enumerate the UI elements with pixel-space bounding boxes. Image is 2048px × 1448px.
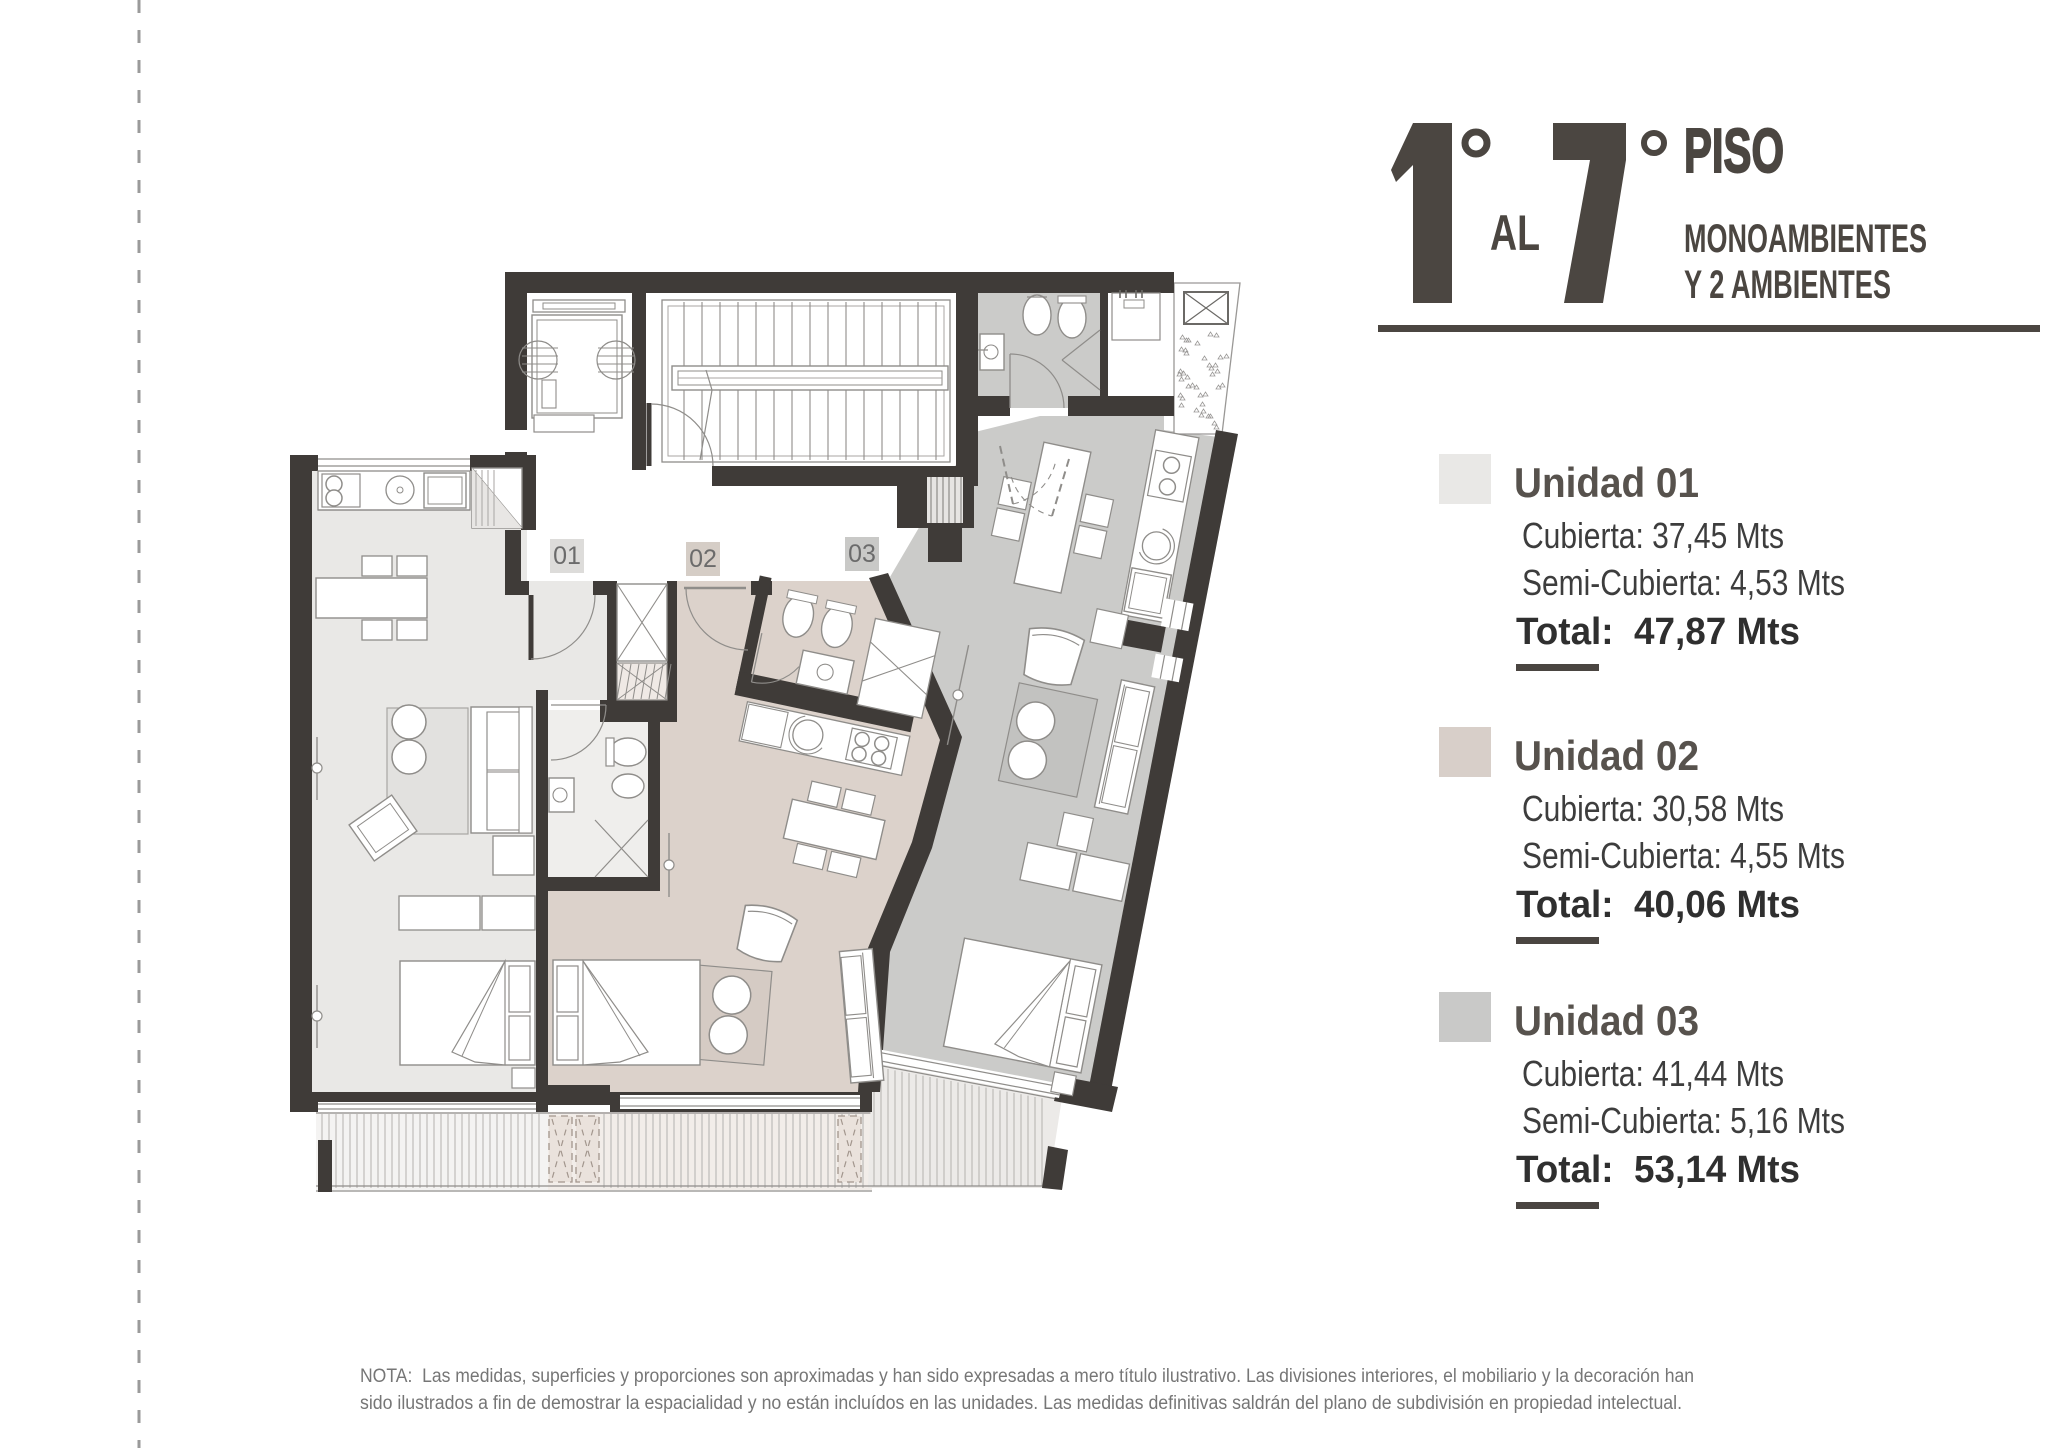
svg-text:Semi-Cubierta: 4,55 Mts: Semi-Cubierta: 4,55 Mts bbox=[1522, 835, 1845, 876]
svg-text:Unidad 03: Unidad 03 bbox=[1514, 997, 1699, 1044]
svg-text:Semi-Cubierta: 5,16 Mts: Semi-Cubierta: 5,16 Mts bbox=[1522, 1100, 1845, 1141]
svg-text:Total: 53,14 Mts: Total: 53,14 Mts bbox=[1516, 1149, 1800, 1191]
svg-text:Cubierta: 41,44 Mts: Cubierta: 41,44 Mts bbox=[1522, 1053, 1784, 1094]
svg-text:Semi-Cubierta: 4,53 Mts: Semi-Cubierta: 4,53 Mts bbox=[1522, 562, 1845, 603]
svg-text:PISO: PISO bbox=[1684, 117, 1784, 186]
svg-text:MONOAMBIENTES: MONOAMBIENTES bbox=[1684, 217, 1927, 261]
svg-text:03: 03 bbox=[848, 540, 876, 568]
svg-text:sido ilustrados a fin de demos: sido ilustrados a fin de demostrar la es… bbox=[360, 1393, 1682, 1414]
svg-text:Cubierta: 30,58 Mts: Cubierta: 30,58 Mts bbox=[1522, 788, 1784, 829]
svg-text:01: 01 bbox=[553, 542, 581, 570]
svg-text:Total: 47,87 Mts: Total: 47,87 Mts bbox=[1516, 611, 1800, 653]
svg-text:Unidad 02: Unidad 02 bbox=[1514, 732, 1699, 779]
svg-text:Cubierta: 37,45 Mts: Cubierta: 37,45 Mts bbox=[1522, 515, 1784, 556]
svg-text:Unidad 01: Unidad 01 bbox=[1514, 459, 1699, 506]
svg-text:Total: 40,06 Mts: Total: 40,06 Mts bbox=[1516, 884, 1800, 926]
svg-text:AL: AL bbox=[1490, 205, 1540, 261]
svg-text:02: 02 bbox=[689, 545, 717, 573]
svg-text:Y 2 AMBIENTES: Y 2 AMBIENTES bbox=[1684, 263, 1891, 307]
svg-text:NOTA: Las medidas, superficie: NOTA: Las medidas, superficies y proporc… bbox=[360, 1366, 1694, 1387]
